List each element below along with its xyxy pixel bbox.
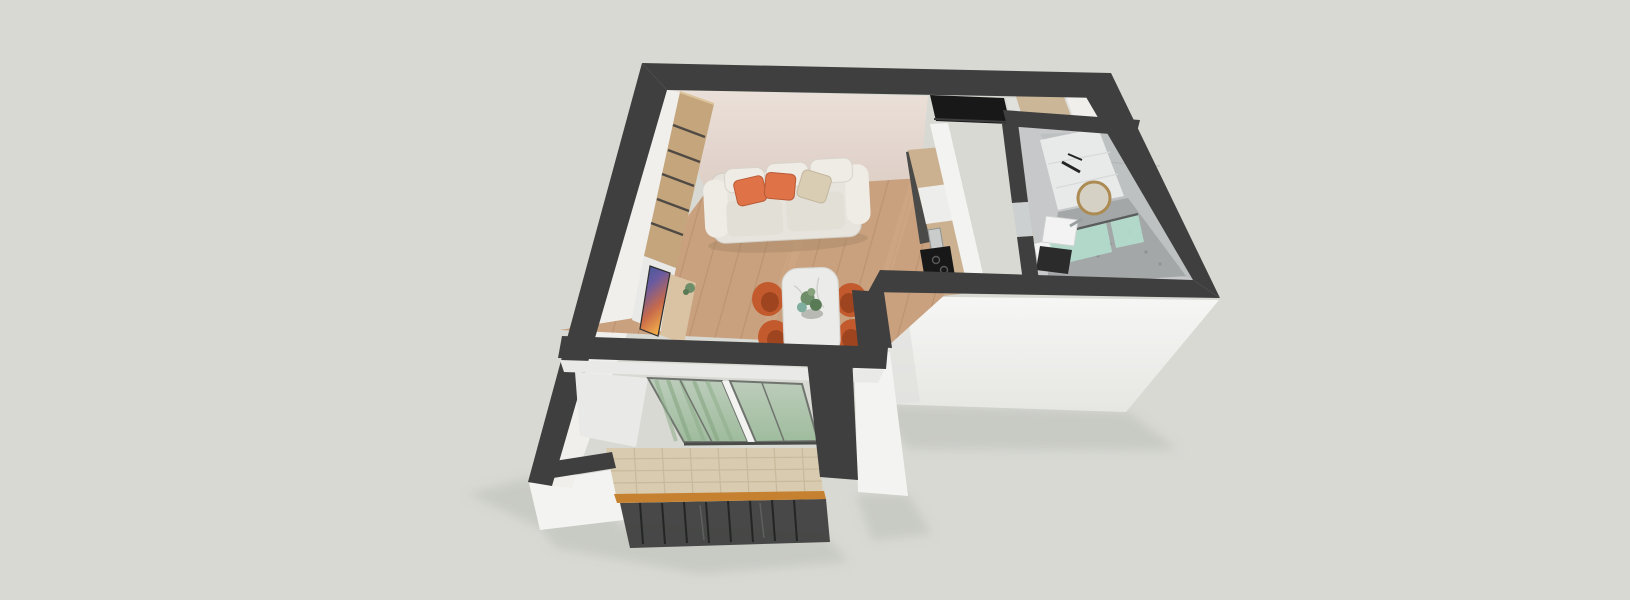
sofa [702,157,873,257]
apartment-3d-floorplan [0,0,1630,600]
sink [1042,216,1078,246]
balcony-west-wall-face [575,372,648,447]
dining-chair-ul [752,282,784,316]
railing-balusters [620,499,830,548]
chair-seat [761,292,779,312]
door-sill [684,443,818,444]
dining-table [782,267,841,357]
balcony-tile-floor [606,448,823,495]
floorplan-svg [0,0,1630,600]
sofa-seat-cushion-1 [726,198,784,237]
round-mirror [1078,182,1110,214]
plant-leaf [683,289,689,295]
vanity-dark [1036,246,1072,274]
pillow-orange-2 [764,172,796,201]
